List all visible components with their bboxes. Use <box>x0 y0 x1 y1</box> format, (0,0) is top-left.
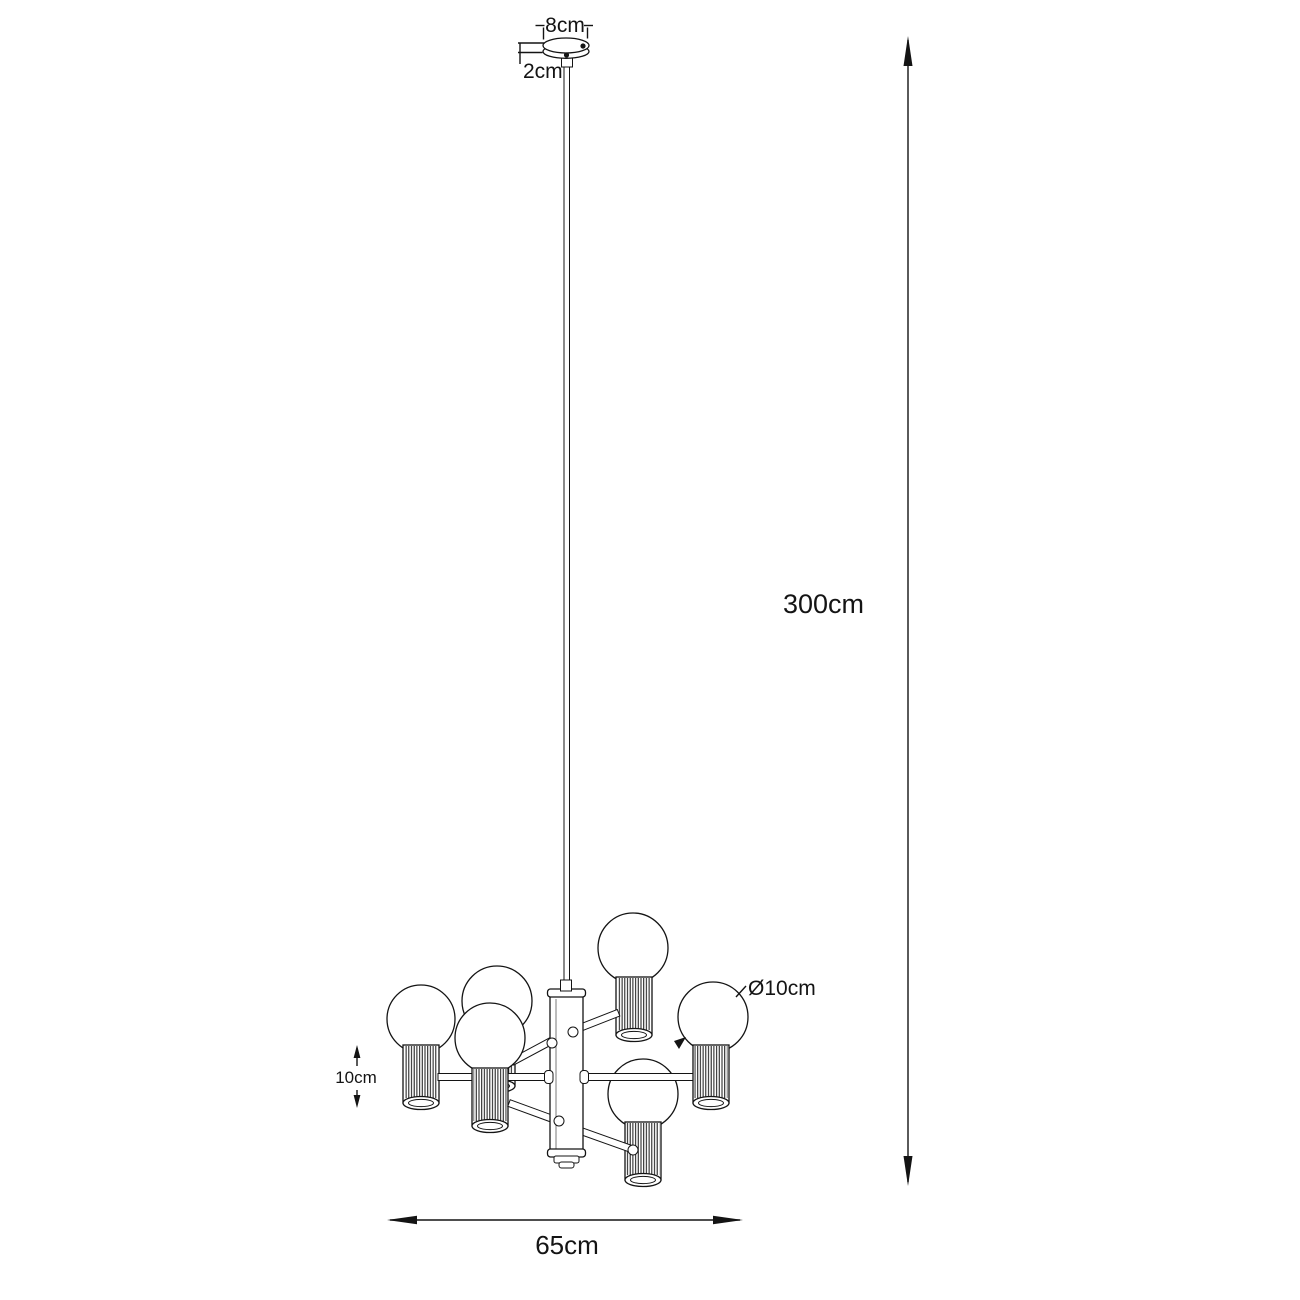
lamp-arm-right <box>584 1074 694 1081</box>
arrowhead-up <box>904 36 913 66</box>
chandelier-dimension-diagram: 8cm 2cm 300cm 65cm 10cm Ø10cm <box>0 0 1300 1300</box>
dimension-shade-height: 10cm <box>335 1045 377 1108</box>
drop-height-label: 300cm <box>783 589 864 619</box>
arm-joint-back-right <box>568 1027 578 1037</box>
suspension-rod <box>564 64 570 982</box>
dimension-drop-height: 300cm <box>783 36 913 1186</box>
lamp-shade-right <box>693 1045 729 1110</box>
arm-joint-bottom <box>628 1145 638 1155</box>
canopy-cable-dot <box>564 52 569 57</box>
canopy-height-label: 2cm <box>523 60 563 83</box>
light-bulb-left <box>387 985 455 1053</box>
rod-column-connector <box>561 980 572 991</box>
light-bulb-right <box>678 982 748 1052</box>
arrowhead-right <box>713 1216 743 1224</box>
arrowhead-left <box>387 1216 417 1224</box>
bulb-diameter-label: Ø10cm <box>748 977 816 1000</box>
arrowhead-leader <box>674 1037 686 1049</box>
dimension-fixture-width: 65cm <box>387 1216 743 1260</box>
light-bulb-mid-left <box>455 1003 525 1073</box>
light-bulb-bottom <box>608 1059 678 1129</box>
shade-height-label: 10cm <box>335 1068 377 1087</box>
canopy-screw-dot <box>580 43 585 48</box>
arm-flange-right <box>580 1071 589 1084</box>
arm-joint-front-left <box>554 1116 564 1126</box>
arm-joint-back-left <box>547 1038 557 1048</box>
fixture-width-label: 65cm <box>535 1230 599 1260</box>
light-bulb-top <box>598 913 668 983</box>
lamp-shade-top <box>616 977 652 1042</box>
arrowhead-down-small <box>354 1095 361 1108</box>
canopy-width-label: 8cm <box>545 14 585 37</box>
arm-flange-left <box>545 1071 554 1084</box>
arrowhead-up-small <box>354 1045 361 1058</box>
lamp-shade-mid-left <box>472 1068 508 1133</box>
ceiling-canopy <box>543 38 589 58</box>
dimension-canopy-width: 8cm <box>536 14 594 40</box>
lamp-shade-left <box>403 1045 439 1110</box>
arrowhead-down <box>904 1156 913 1186</box>
technical-drawing-canvas: 8cm 2cm 300cm 65cm 10cm Ø10cm <box>0 0 1300 1300</box>
